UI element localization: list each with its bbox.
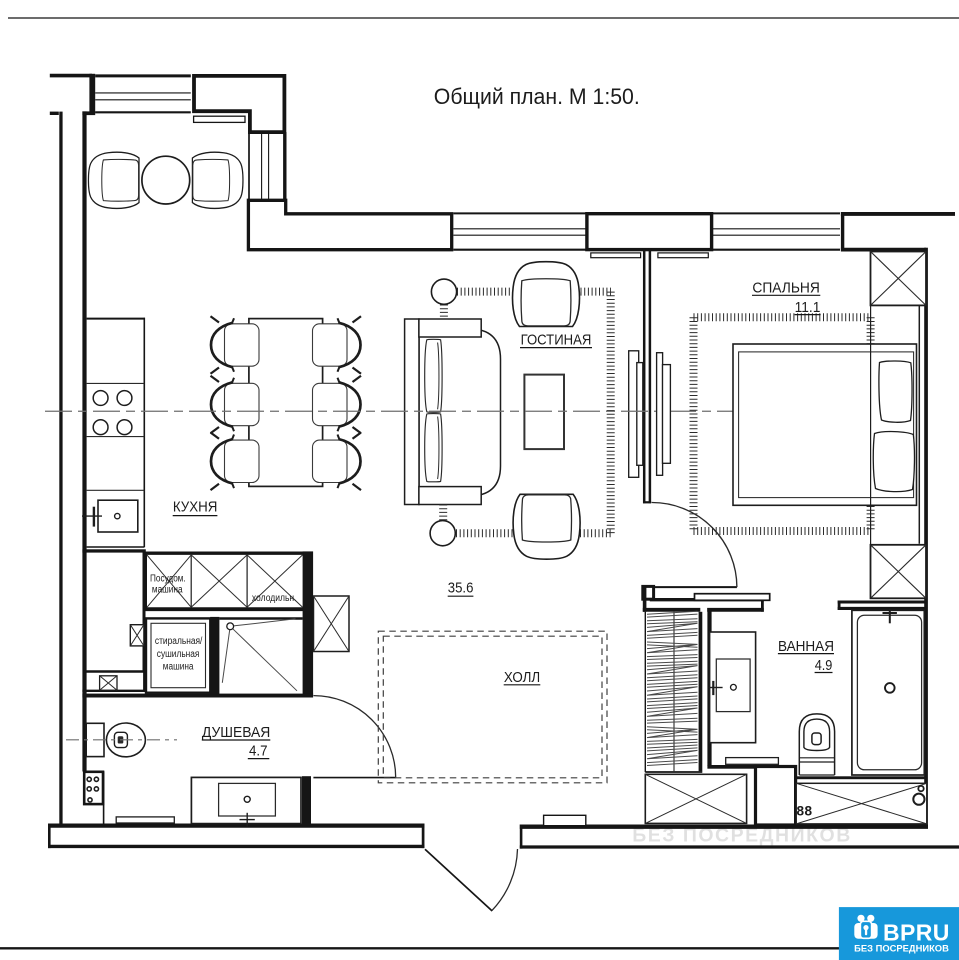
- svg-text:ХОЛЛ: ХОЛЛ: [504, 669, 540, 686]
- svg-text:БЕЗ ПОСРЕДНИКОВ: БЕЗ ПОСРЕДНИКОВ: [854, 942, 949, 953]
- svg-text:ВАННАЯ: ВАННАЯ: [778, 638, 834, 655]
- svg-text:стиральная/: стиральная/: [155, 636, 203, 647]
- svg-text:СПАЛЬНЯ: СПАЛЬНЯ: [752, 280, 820, 297]
- svg-text:35.6: 35.6: [448, 579, 474, 596]
- svg-text:КУХНЯ: КУХНЯ: [173, 499, 218, 516]
- svg-text:БЕЗ ПОСРЕДНИКОВ: БЕЗ ПОСРЕДНИКОВ: [632, 825, 852, 847]
- svg-text:сушильная: сушильная: [157, 649, 200, 660]
- svg-text:холодильн.: холодильн.: [252, 593, 297, 604]
- svg-text:4.9: 4.9: [815, 657, 833, 674]
- svg-text:88: 88: [797, 804, 813, 819]
- svg-text:11.1: 11.1: [795, 299, 821, 316]
- svg-text:ДУШЕВАЯ: ДУШЕВАЯ: [202, 724, 270, 741]
- svg-text:Общий план. М 1:50.: Общий план. М 1:50.: [434, 84, 640, 109]
- svg-text:4.7: 4.7: [249, 743, 268, 760]
- svg-text:машина: машина: [152, 584, 183, 595]
- svg-text:Посудом.: Посудом.: [150, 573, 186, 584]
- svg-text:машина: машина: [163, 662, 194, 673]
- svg-text:ГОСТИНАЯ: ГОСТИНАЯ: [521, 332, 592, 349]
